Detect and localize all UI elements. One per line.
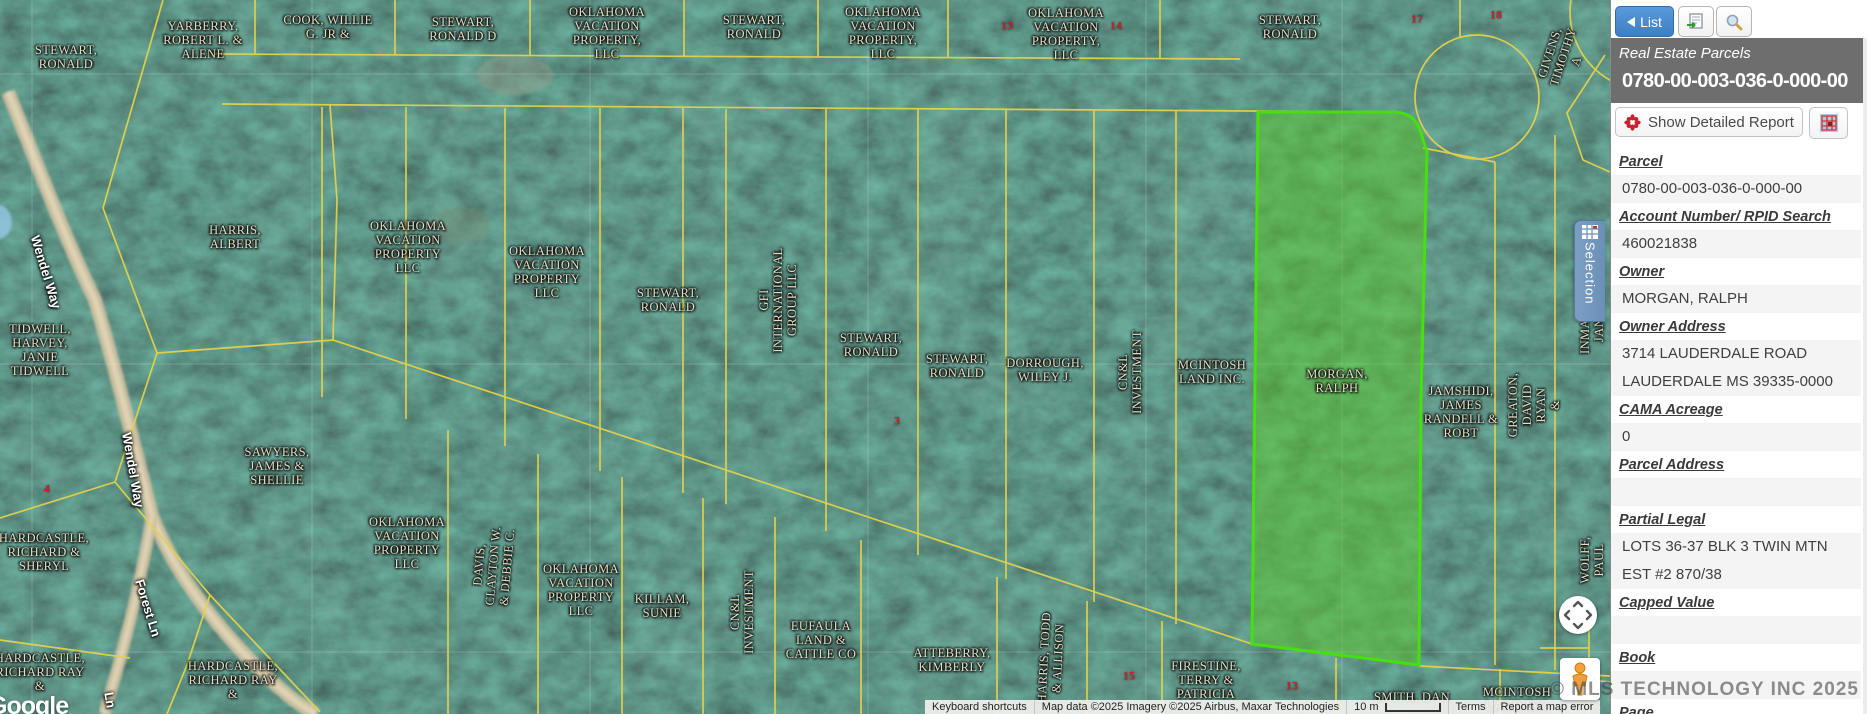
field-label: Owner Address <box>1611 313 1861 340</box>
parcel-owner-label: SAWYERS, JAMES & SHELLIE <box>244 445 309 487</box>
sidebar-header: Real Estate Parcels 0780-00-003-036-0-00… <box>1611 38 1867 103</box>
field-group: Parcel Address <box>1611 451 1861 506</box>
selection-tab-label: Selection <box>1583 242 1598 304</box>
parcel-owner-label: GFI INTERNATIONAL GROUP LLC <box>757 247 799 352</box>
print-report-icon <box>1686 13 1706 31</box>
parcel-owner-label: STEWART, RONALD <box>723 13 785 41</box>
parcel-owner-label: JAMSHIDI, JAMES RANDELL & ROBT <box>1424 384 1498 440</box>
map-attribution-bar: Keyboard shortcutsMap data ©2025 Imagery… <box>925 700 1600 714</box>
parcel-id-heading: 0780-00-003-036-0-000-00 <box>1611 62 1867 93</box>
parcel-owner-label: EUFAULA LAND & CATTLE CO <box>786 619 857 661</box>
field-group: OwnerMORGAN, RALPH <box>1611 258 1861 313</box>
field-group: Capped Value <box>1611 589 1861 644</box>
parcel-owner-label: OKLAHOMA VACATION PROPERTY, LLC <box>845 5 921 61</box>
satellite-imagery <box>0 0 1610 714</box>
parcel-owner-label: COOK, WILLIE G. JR & <box>283 13 372 41</box>
parcel-owner-label: OKLAHOMA VACATION PROPERTY, LLC <box>569 5 645 61</box>
field-value: EST #2 870/38 <box>1611 561 1861 589</box>
field-label: Capped Value <box>1611 589 1861 616</box>
field-label: Partial Legal <box>1611 506 1861 533</box>
field-label: CAMA Acreage <box>1611 396 1861 423</box>
sidebar-actions: Show Detailed Report <box>1611 107 1867 141</box>
parcel-owner-label: HARDCASTLE, RICHARD RAY & <box>188 659 278 701</box>
field-group: Page <box>1611 699 1861 714</box>
parcel-owner-label: OKLAHOMA VACATION PROPERTY LLC <box>543 562 619 618</box>
parcel-owner-label: HARDCASTLE, RICHARD & SHERYL <box>0 531 89 573</box>
parcel-owner-label: OKLAHOMA VACATION PROPERTY LLC <box>369 515 445 571</box>
parcel-owner-label: WOLFF, PAUL <box>1578 537 1606 584</box>
parcel-owner-label: STEWART, RONALD <box>637 286 699 314</box>
sidebar-scrollbar[interactable] <box>1863 38 1867 714</box>
attribution-item: Map data ©2025 Imagery ©2025 Airbus, Max… <box>1034 700 1346 714</box>
field-value: 460021838 <box>1611 230 1861 258</box>
lot-number-label: 17 <box>1411 12 1423 27</box>
parcel-owner-label: GREATON, DAVID RYAN & <box>1506 367 1562 443</box>
field-value: 0780-00-003-036-0-000-00 <box>1611 175 1861 203</box>
lot-number-label: 18 <box>1490 8 1502 23</box>
list-button-label: List <box>1640 14 1662 30</box>
parcel-map-button[interactable] <box>1809 107 1848 139</box>
parcel-owner-label: OKLAHOMA VACATION PROPERTY LLC <box>509 244 585 300</box>
parcel-owner-label: HARRIS, ALBERT <box>209 223 261 251</box>
pan-arrows-icon <box>1559 596 1597 634</box>
selection-tab[interactable]: Selection <box>1574 220 1605 322</box>
left-triangle-icon <box>1627 17 1635 27</box>
scale-bar <box>1385 703 1441 712</box>
app-window: STEWART, RONALDYARBERRY, ROBERT L. & ALE… <box>0 0 1867 714</box>
parcel-owner-label: CN&L INVESTMENT <box>1116 330 1144 414</box>
parcel-owner-label: OKLAHOMA VACATION PROPERTY LLC <box>370 219 446 275</box>
parcel-owner-label: HARRIS, TODD & ALLISON <box>1035 612 1068 705</box>
field-value: 3714 LAUDERDALE ROAD <box>1611 340 1861 368</box>
parcel-owner-label: STEWART, RONALD <box>35 43 97 71</box>
selection-grid-icon <box>1582 225 1598 239</box>
lot-number-label: 13 <box>1001 19 1013 34</box>
report-pinwheel-icon <box>1624 114 1641 131</box>
show-detailed-report-label: Show Detailed Report <box>1648 114 1794 131</box>
field-label: Parcel <box>1611 148 1861 175</box>
parcel-owner-label: KILLAM, SUNIE <box>635 592 690 620</box>
parcel-owner-label: TIDWELL, HARVEY, JANIE TIDWELL <box>9 322 71 378</box>
map-scale: 10 m <box>1346 700 1447 714</box>
print-report-button[interactable] <box>1678 6 1714 37</box>
parcel-owner-label: MORGAN, RALPH <box>1306 367 1368 395</box>
parcel-owner-label: STEWART, RONALD <box>926 352 988 380</box>
search-button[interactable] <box>1716 6 1752 37</box>
parcel-owner-label: ATTEBERRY, KIMBERLY <box>913 646 990 674</box>
back-to-list-button[interactable]: List <box>1615 6 1674 37</box>
field-group: Account Number/ RPID Search460021838 <box>1611 203 1861 258</box>
attribution-item[interactable]: Keyboard shortcuts <box>925 700 1034 714</box>
field-value: LAUDERDALE MS 39335-0000 <box>1611 368 1861 396</box>
pegman-streetview-button[interactable] <box>1560 658 1600 700</box>
parcel-owner-label: CN&L INVESTMENT <box>728 570 756 654</box>
field-group: Owner Address3714 LAUDERDALE ROADLAUDERD… <box>1611 313 1861 396</box>
layer-title: Real Estate Parcels <box>1611 38 1867 62</box>
attribution-item[interactable]: Report a map error <box>1493 700 1601 714</box>
lot-number-label: 13 <box>1286 679 1298 694</box>
parcel-owner-label: HARDCASTLE, RICHARD RAY & <box>0 651 85 693</box>
attribution-item[interactable]: Terms <box>1448 700 1493 714</box>
parcel-owner-label: YARBERRY, ROBERT L. & ALENE <box>163 19 242 61</box>
lot-number-label: 3 <box>894 414 900 429</box>
parcel-owner-label: MCINTOSH LAND INC. <box>1178 358 1246 386</box>
parcel-map-icon <box>1819 113 1839 133</box>
field-value <box>1611 671 1861 699</box>
field-label: Book <box>1611 644 1861 671</box>
field-value <box>1611 478 1861 506</box>
field-group: CAMA Acreage0 <box>1611 396 1861 451</box>
field-value: MORGAN, RALPH <box>1611 285 1861 313</box>
parcel-owner-label: STEWART, RONALD <box>840 331 902 359</box>
parcel-details-sidebar: List Real Estate Parcels 0780-00-003-036… <box>1610 0 1867 714</box>
lot-number-label: 14 <box>1110 19 1122 34</box>
lot-number-label: 4 <box>44 482 50 497</box>
field-label: Owner <box>1611 258 1861 285</box>
parcel-owner-label: DORROUGH, WILEY J. <box>1006 356 1084 384</box>
parcel-owner-label: STEWART, RONALD D <box>429 15 496 43</box>
field-label: Parcel Address <box>1611 451 1861 478</box>
field-value: LOTS 36-37 BLK 3 TWIN MTN <box>1611 533 1861 561</box>
parcel-owner-label: FIRESTINE, TERRY & PATRICIA <box>1171 659 1241 701</box>
map-canvas[interactable]: STEWART, RONALDYARBERRY, ROBERT L. & ALE… <box>0 0 1610 714</box>
field-value: 0 <box>1611 423 1861 451</box>
pan-control-button[interactable] <box>1559 596 1597 634</box>
field-label: Page <box>1611 699 1861 714</box>
google-logo: Google <box>0 692 68 714</box>
road-name-label: Ln <box>101 691 119 709</box>
field-group: Partial LegalLOTS 36-37 BLK 3 TWIN MTNES… <box>1611 506 1861 589</box>
show-detailed-report-button[interactable]: Show Detailed Report <box>1615 107 1803 137</box>
field-value <box>1611 616 1861 644</box>
parcel-fields-list: Parcel0780-00-003-036-0-000-00Account Nu… <box>1611 148 1861 714</box>
parcel-owner-label: OKLAHOMA VACATION PROPERTY, LLC <box>1028 6 1104 62</box>
field-group: Parcel0780-00-003-036-0-000-00 <box>1611 148 1861 203</box>
sidebar-toolbar: List <box>1611 0 1867 38</box>
field-group: Book <box>1611 644 1861 699</box>
search-icon <box>1725 13 1743 31</box>
field-label: Account Number/ RPID Search <box>1611 203 1861 230</box>
parcel-owner-label: STEWART, RONALD <box>1259 13 1321 41</box>
lot-number-label: 15 <box>1123 669 1135 684</box>
parcel-owner-label: DAVIS, CLAYTON W. & DEBBIE C. <box>469 525 518 607</box>
pegman-icon <box>1567 662 1593 696</box>
